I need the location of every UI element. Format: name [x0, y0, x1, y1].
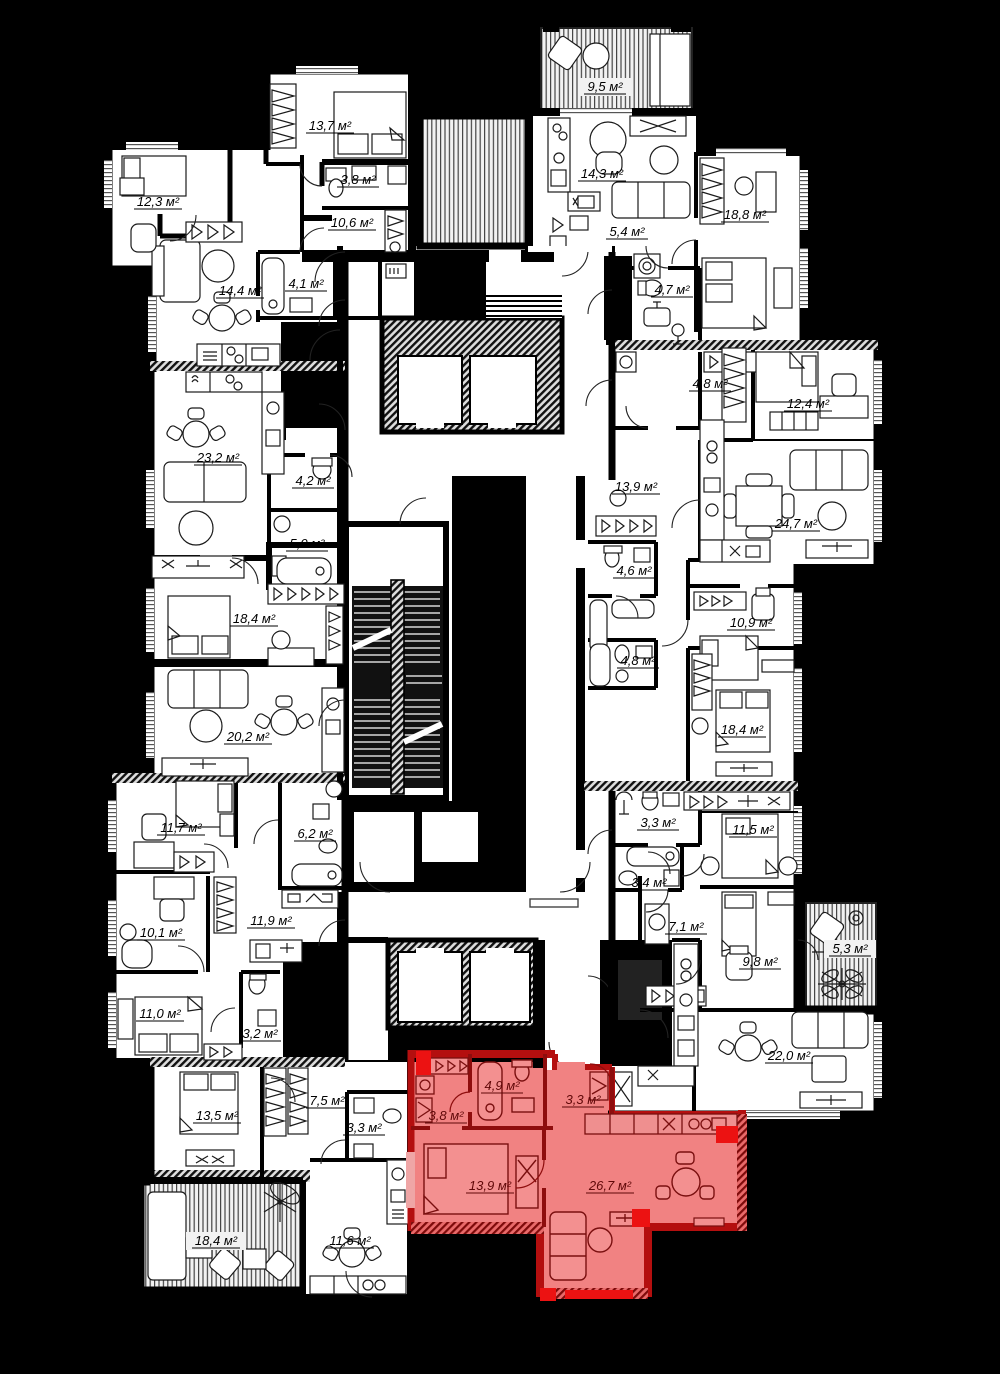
svg-text:18,8 м²: 18,8 м² [724, 207, 767, 222]
svg-text:18,4 м²: 18,4 м² [233, 611, 276, 626]
svg-text:11,9 м²: 11,9 м² [250, 913, 292, 928]
svg-text:18,4 м²: 18,4 м² [721, 722, 764, 737]
svg-text:5,0 м²: 5,0 м² [290, 536, 326, 551]
svg-text:4,6 м²: 4,6 м² [617, 563, 653, 578]
svg-text:4,2 м²: 4,2 м² [296, 473, 332, 488]
svg-text:7,5 м²: 7,5 м² [310, 1093, 346, 1108]
svg-text:10,9 м²: 10,9 м² [730, 615, 773, 630]
svg-text:12,3 м²: 12,3 м² [137, 194, 180, 209]
svg-text:11,7 м²: 11,7 м² [160, 820, 202, 835]
svg-text:14,3 м²: 14,3 м² [581, 166, 624, 181]
svg-text:13,7 м²: 13,7 м² [309, 118, 352, 133]
svg-text:11,5 м²: 11,5 м² [732, 822, 774, 837]
svg-text:12,4 м²: 12,4 м² [787, 396, 830, 411]
svg-text:11,0 м²: 11,0 м² [139, 1006, 181, 1021]
svg-text:6,2 м²: 6,2 м² [298, 826, 334, 841]
svg-text:7,1 м²: 7,1 м² [669, 919, 705, 934]
svg-text:4,7 м²: 4,7 м² [655, 282, 691, 297]
svg-text:3,4 м²: 3,4 м² [632, 875, 668, 890]
svg-text:4,8 м²: 4,8 м² [693, 376, 729, 391]
svg-text:5,3 м²: 5,3 м² [833, 941, 869, 956]
svg-text:13,9 м²: 13,9 м² [469, 1178, 512, 1193]
svg-text:5,4 м²: 5,4 м² [610, 224, 646, 239]
svg-text:22,0 м²: 22,0 м² [767, 1048, 811, 1063]
svg-text:4,1 м²: 4,1 м² [289, 276, 325, 291]
svg-text:13,5 м²: 13,5 м² [196, 1108, 239, 1123]
svg-text:3,2 м²: 3,2 м² [243, 1026, 279, 1041]
svg-text:9,8 м²: 9,8 м² [743, 954, 779, 969]
svg-text:3,3 м²: 3,3 м² [347, 1120, 383, 1135]
svg-text:10,6 м²: 10,6 м² [331, 215, 374, 230]
svg-text:23,2 м²: 23,2 м² [196, 450, 240, 465]
svg-text:20,2 м²: 20,2 м² [226, 729, 270, 744]
svg-text:3,3 м²: 3,3 м² [566, 1092, 602, 1107]
svg-text:9,5 м²: 9,5 м² [588, 79, 624, 94]
svg-text:13,9 м²: 13,9 м² [615, 479, 658, 494]
svg-text:4,8 м²: 4,8 м² [621, 653, 657, 668]
svg-text:14,4 м²: 14,4 м² [219, 283, 262, 298]
svg-text:3,3 м²: 3,3 м² [641, 815, 677, 830]
svg-text:11,6 м²: 11,6 м² [329, 1233, 371, 1248]
svg-text:4,9 м²: 4,9 м² [485, 1078, 521, 1093]
svg-text:26,7 м²: 26,7 м² [588, 1178, 632, 1193]
svg-text:18,4 м²: 18,4 м² [195, 1233, 238, 1248]
svg-text:10,1 м²: 10,1 м² [140, 925, 183, 940]
svg-text:24,7 м²: 24,7 м² [774, 516, 818, 531]
svg-text:3,8 м²: 3,8 м² [341, 172, 377, 187]
svg-text:3,8 м²: 3,8 м² [429, 1108, 465, 1123]
